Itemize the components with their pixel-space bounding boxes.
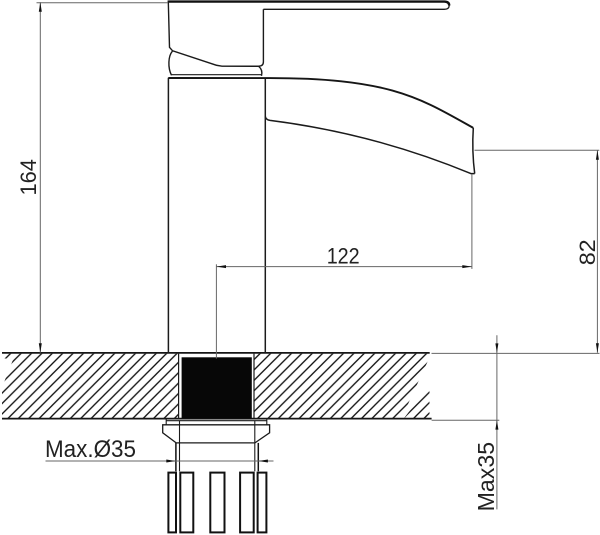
svg-text:122: 122 [327,244,360,269]
svg-text:Max.Ø35: Max.Ø35 [45,436,136,463]
svg-text:82: 82 [575,239,600,265]
svg-text:Max35: Max35 [473,442,499,512]
svg-text:164: 164 [16,159,41,196]
